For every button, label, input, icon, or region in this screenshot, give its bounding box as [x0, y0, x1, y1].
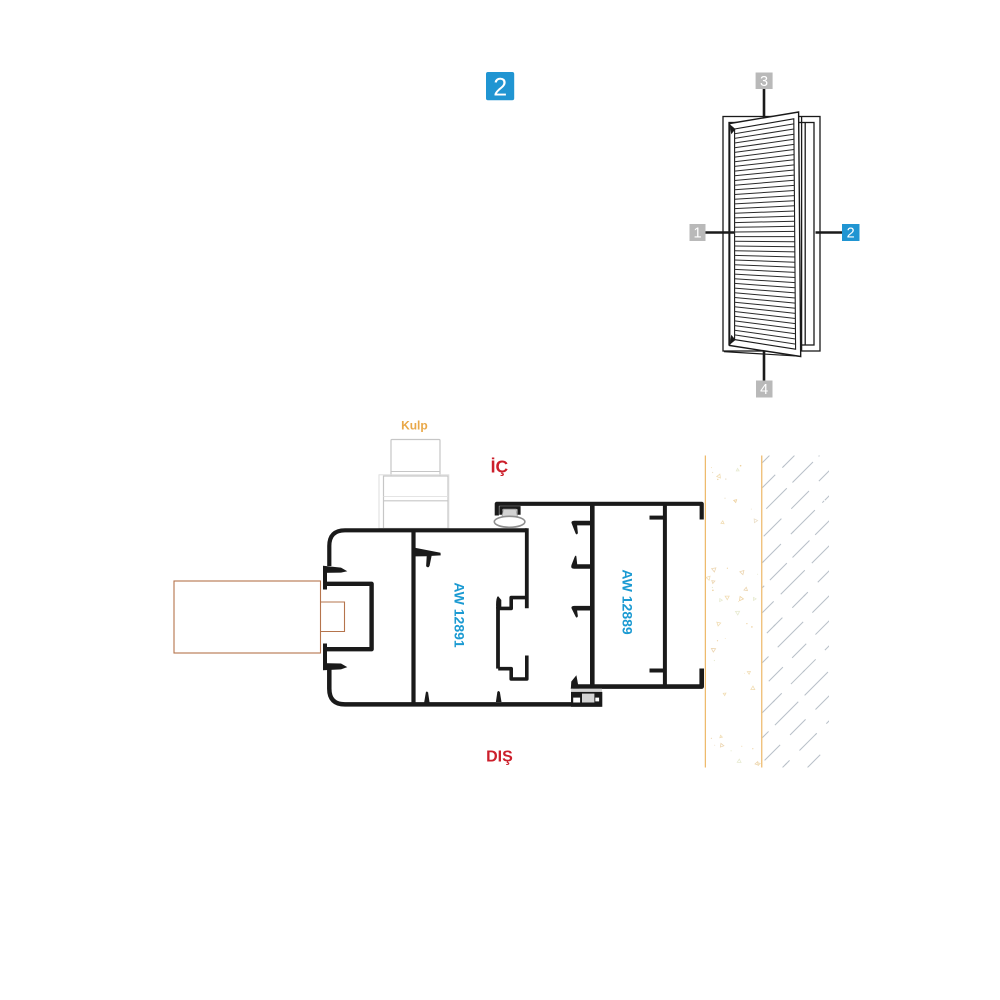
svg-text:Kulp: Kulp: [401, 418, 428, 432]
svg-text:1: 1: [693, 226, 701, 242]
svg-text:4: 4: [760, 382, 768, 398]
svg-text:2: 2: [493, 74, 507, 102]
svg-text:DIŞ: DIŞ: [486, 749, 513, 766]
svg-text:3: 3: [760, 74, 768, 90]
svg-text:İÇ: İÇ: [491, 457, 509, 477]
svg-text:AW 12889: AW 12889: [619, 569, 635, 635]
svg-text:2: 2: [847, 226, 855, 242]
svg-text:AW 12891: AW 12891: [451, 582, 467, 648]
